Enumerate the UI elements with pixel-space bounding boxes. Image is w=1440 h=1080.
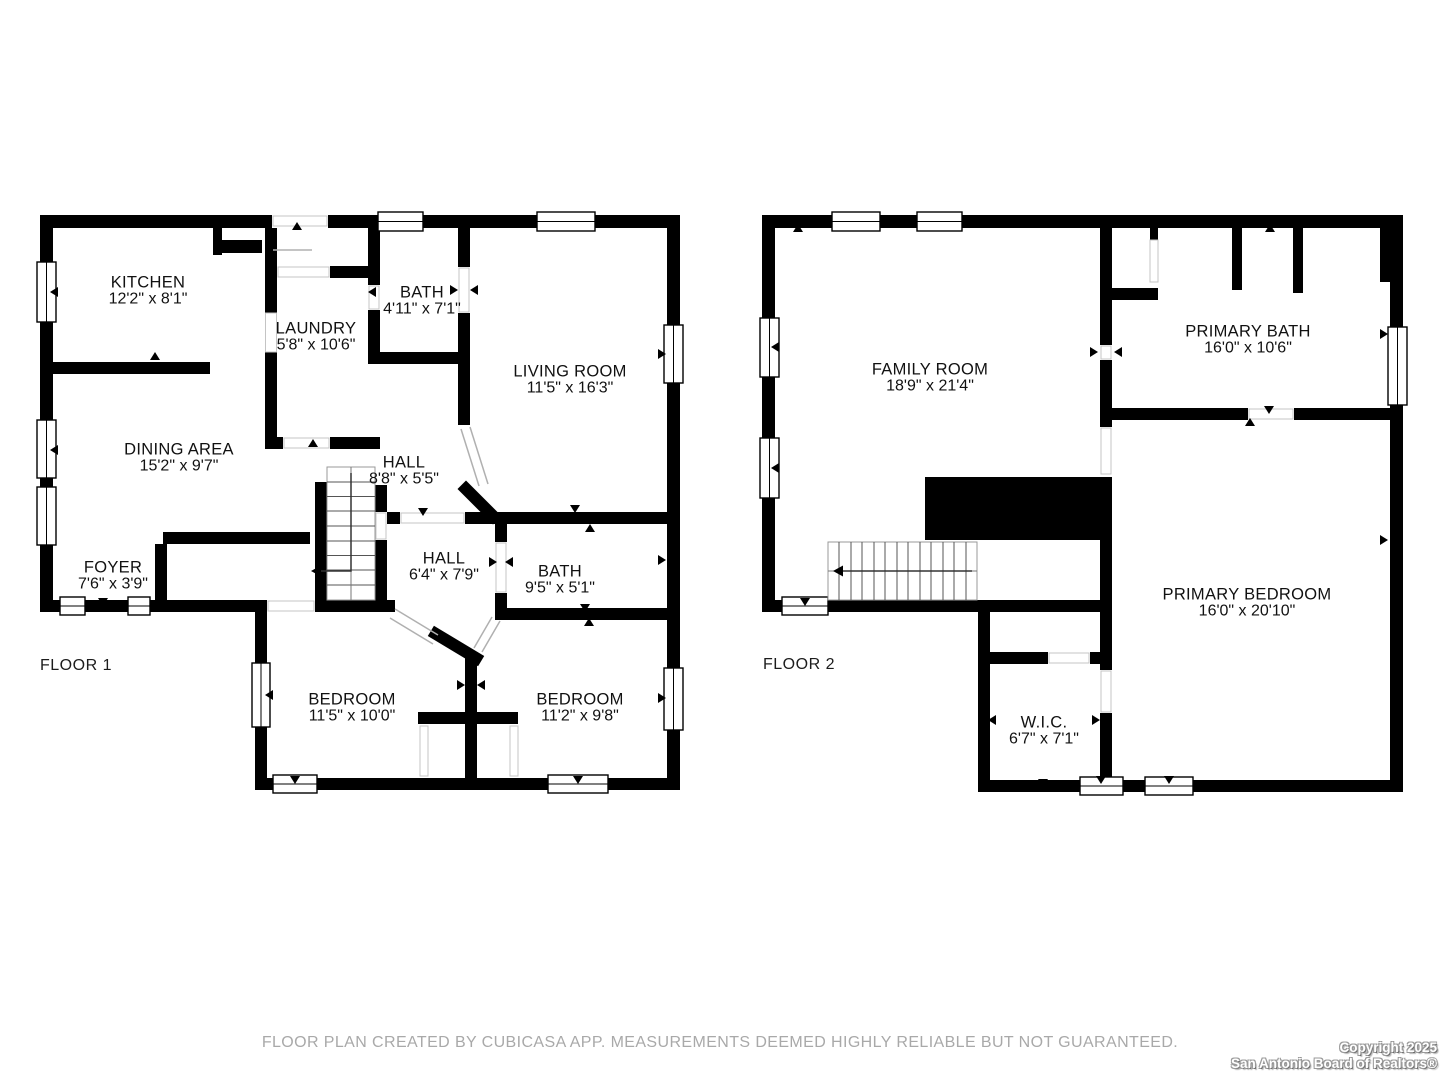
room-name-label: BEDROOM [308, 690, 395, 708]
room-dims-label: 11'5" x 10'0" [309, 708, 396, 725]
window-icon [832, 212, 880, 231]
room-name-label: PRIMARY BATH [1185, 322, 1311, 340]
room-dims-label: 16'0" x 10'6" [1204, 340, 1292, 357]
room-name-label: DINING AREA [124, 440, 234, 458]
room-dims-label: 6'4" x 7'9" [409, 567, 479, 584]
room-dims-label: 6'7" x 7'1" [1009, 731, 1079, 748]
room-name-label: FOYER [84, 558, 142, 576]
floor2-label: FLOOR 2 [763, 656, 835, 673]
diagonal-wall [436, 634, 476, 658]
room-dims-label: 18'9" x 21'4" [886, 378, 974, 395]
floor2-plan [760, 212, 1407, 795]
window-icon [378, 212, 423, 231]
room-name-label: BATH [400, 283, 444, 301]
room-name-label: LIVING ROOM [513, 362, 626, 380]
room-dims-label: 12'2" x 8'1" [109, 291, 188, 308]
window-icon [128, 597, 150, 615]
room-name-label: HALL [423, 549, 465, 567]
room-dims-label: 7'6" x 3'9" [78, 576, 148, 593]
floorplan-drawing: FLOOR 1 FLOOR 2 KITCHEN12'2" x 8'1"LAUND… [0, 0, 1440, 1080]
room-dims-label: 16'0" x 20'10" [1199, 603, 1296, 620]
floorplan-page: FLOOR 1 FLOOR 2 KITCHEN12'2" x 8'1"LAUND… [0, 0, 1440, 1080]
room-name-label: HALL [383, 453, 425, 471]
window-icon [1388, 327, 1407, 405]
floor2-door-openings [1049, 240, 1293, 712]
room-name-label: KITCHEN [111, 273, 186, 291]
copyright-line1: Copyright 2025 [1231, 1040, 1437, 1056]
window-icon [537, 212, 595, 231]
room-name-label: W.I.C. [1021, 713, 1068, 731]
room-dims-label: 11'2" x 9'8" [541, 708, 619, 725]
room-dims-label: 9'5" x 5'1" [525, 580, 595, 597]
room-dims-label: 15'2" x 9'7" [140, 458, 219, 475]
room-dims-label: 8'8" x 5'5" [369, 471, 439, 488]
window-icon [664, 325, 683, 383]
disclaimer-text: FLOOR PLAN CREATED BY CUBICASA APP. MEAS… [0, 1034, 1440, 1052]
floor2-stairs-icon [828, 542, 977, 600]
room-dims-label: 4'11" x 7'1" [383, 301, 461, 318]
room-name-label: PRIMARY BEDROOM [1163, 585, 1332, 603]
room-name-label: LAUNDRY [276, 319, 357, 337]
diagonal-wall [466, 489, 493, 516]
window-icon [60, 597, 85, 615]
copyright-line2: San Antonio Board of Realtors® [1231, 1056, 1437, 1072]
floor2-walls [762, 215, 1403, 792]
room-dims-label: 5'8" x 10'6" [277, 337, 356, 354]
window-icon [917, 212, 962, 231]
room-name-label: BATH [538, 562, 582, 580]
window-icon [664, 668, 683, 730]
room-dims-label: 11'5" x 16'3" [527, 380, 614, 397]
window-icon [37, 487, 56, 545]
room-name-label: FAMILY ROOM [872, 360, 988, 378]
room-name-label: BEDROOM [536, 690, 623, 708]
floor1-label: FLOOR 1 [40, 657, 112, 674]
copyright-text: Copyright 2025 San Antonio Board of Real… [1231, 1040, 1437, 1072]
